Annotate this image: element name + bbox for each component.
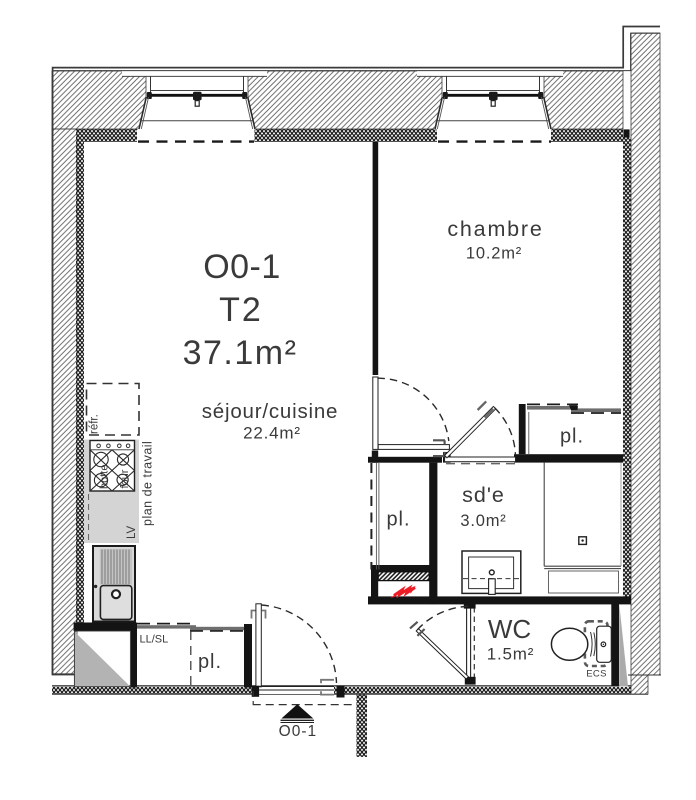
svg-text:37.1m²: 37.1m² — [183, 334, 298, 372]
svg-text:chambre: chambre — [447, 217, 543, 241]
svg-text:pl.: pl. — [198, 651, 222, 673]
svg-text:22.4m²: 22.4m² — [243, 424, 301, 443]
svg-text:T2: T2 — [219, 291, 263, 329]
svg-text:1.5m²: 1.5m² — [487, 645, 534, 664]
svg-text:LL/SL: LL/SL — [140, 634, 169, 646]
svg-text:O0-1: O0-1 — [279, 723, 317, 740]
svg-text:LV: LV — [126, 525, 138, 539]
svg-text:WC: WC — [488, 614, 531, 644]
svg-text:four: four — [119, 469, 131, 488]
svg-text:3.0m²: 3.0m² — [460, 512, 506, 530]
svg-text:O0-1: O0-1 — [203, 248, 281, 286]
svg-text:réfr.: réfr. — [89, 414, 101, 434]
svg-text:séjour/cuisine: séjour/cuisine — [202, 400, 339, 423]
svg-text:ECS: ECS — [586, 669, 606, 680]
svg-text:sd'e: sd'e — [462, 483, 505, 507]
svg-text:hotte: hotte — [99, 465, 111, 489]
svg-text:plan de travail: plan de travail — [141, 441, 155, 526]
svg-text:pl.: pl. — [560, 426, 584, 448]
svg-text:10.2m²: 10.2m² — [466, 245, 522, 263]
svg-text:pl.: pl. — [386, 509, 410, 531]
